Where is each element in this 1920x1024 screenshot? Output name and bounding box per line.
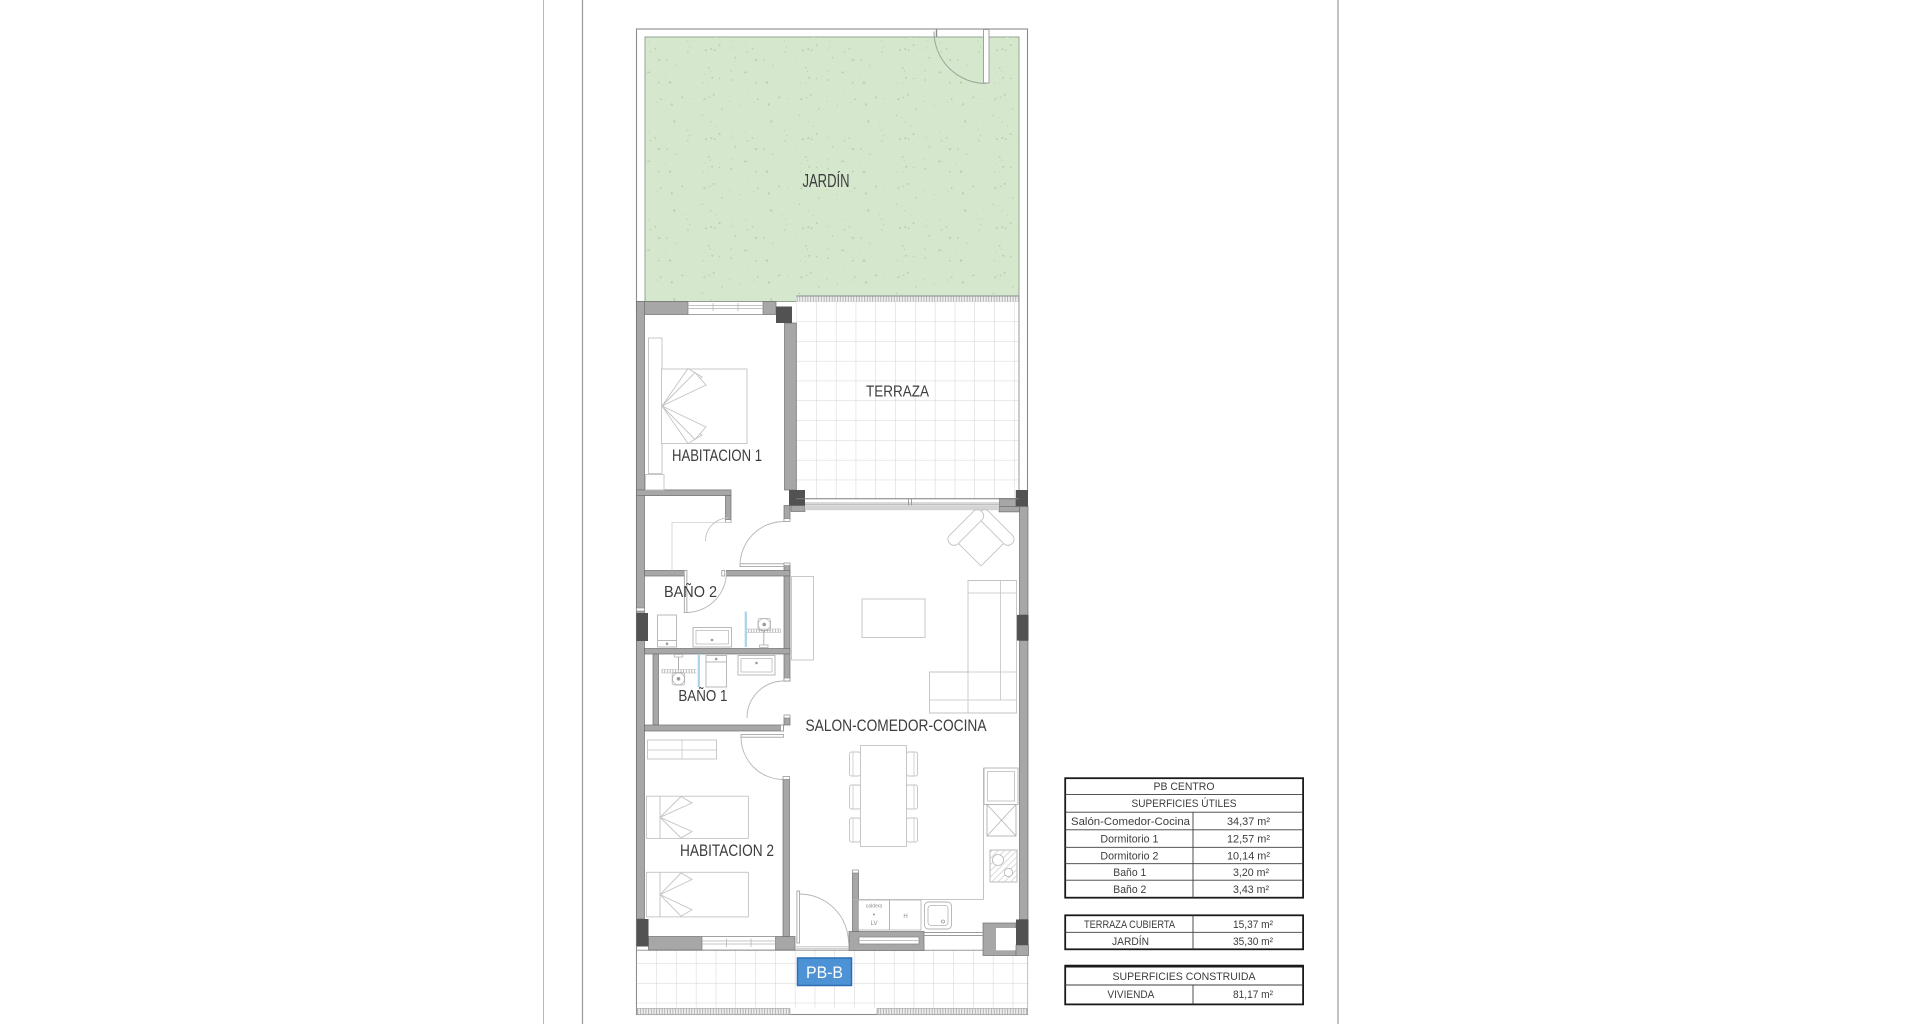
svg-text:BAÑO 1: BAÑO 1 [678, 685, 727, 705]
svg-text:HABITACION 2: HABITACION 2 [680, 841, 774, 860]
svg-text:3,43 m²: 3,43 m² [1233, 884, 1269, 896]
svg-text:34,37 m²: 34,37 m² [1227, 816, 1270, 828]
svg-text:3,20 m²: 3,20 m² [1233, 867, 1269, 879]
svg-text:SUPERFICIES CONSTRUIDA: SUPERFICIES CONSTRUIDA [1113, 971, 1257, 983]
svg-text:Salón-Comedor-Cocina: Salón-Comedor-Cocina [1071, 816, 1191, 828]
svg-text:SUPERFICIES ÚTILES: SUPERFICIES ÚTILES [1132, 797, 1237, 810]
svg-text:SALON-COMEDOR-COCINA: SALON-COMEDOR-COCINA [806, 716, 988, 735]
svg-text:Dormitorio 2: Dormitorio 2 [1100, 851, 1158, 863]
svg-text:HABITACION 1: HABITACION 1 [672, 446, 762, 465]
svg-text:JARDÍN: JARDÍN [803, 171, 850, 191]
svg-text:Baño 1: Baño 1 [1113, 867, 1146, 879]
svg-text:15,37 m²: 15,37 m² [1233, 919, 1273, 931]
svg-text:caldera: caldera [866, 904, 883, 910]
svg-text:H: H [903, 914, 907, 920]
svg-text:12,57 m²: 12,57 m² [1227, 834, 1270, 846]
svg-text:35,30 m²: 35,30 m² [1233, 936, 1273, 948]
svg-text:TERRAZA: TERRAZA [866, 384, 929, 401]
svg-text:VIVIENDA: VIVIENDA [1107, 989, 1155, 1001]
svg-text:BAÑO 2: BAÑO 2 [664, 581, 717, 601]
svg-text:81,17 m²: 81,17 m² [1233, 989, 1273, 1001]
svg-text:JARDÍN: JARDÍN [1112, 935, 1149, 948]
svg-text:Baño 2: Baño 2 [1113, 884, 1146, 896]
svg-text:Dormitorio 1: Dormitorio 1 [1100, 834, 1158, 846]
svg-text:LV: LV [871, 921, 878, 927]
svg-text:PB CENTRO: PB CENTRO [1154, 781, 1215, 793]
svg-text:TERRAZA CUBIERTA: TERRAZA CUBIERTA [1084, 919, 1176, 931]
svg-text:PB-B: PB-B [806, 963, 843, 982]
svg-text:10,14 m²: 10,14 m² [1227, 851, 1270, 863]
